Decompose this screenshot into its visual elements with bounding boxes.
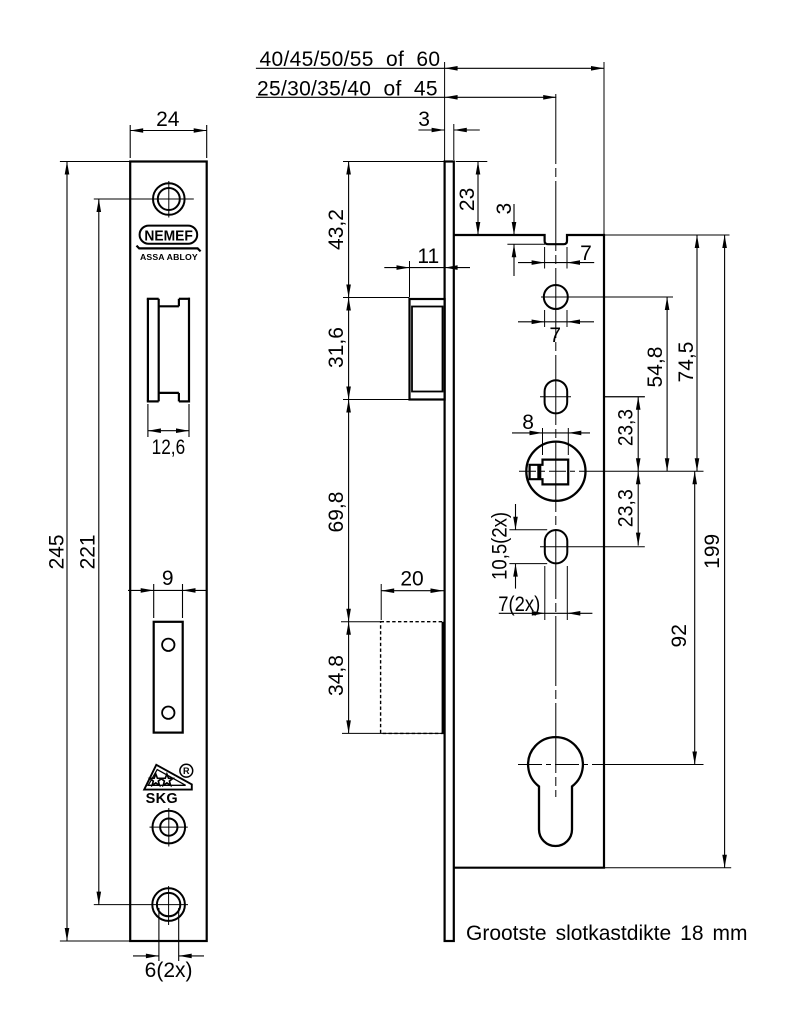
svg-text:23,3: 23,3 [615, 409, 638, 446]
svg-text:31,6: 31,6 [325, 327, 348, 368]
svg-text:9: 9 [162, 567, 174, 590]
svg-text:34,8: 34,8 [325, 655, 348, 696]
svg-text:74,5: 74,5 [675, 342, 698, 383]
svg-text:40/45/50/55 of 60: 40/45/50/55 of 60 [260, 48, 441, 71]
svg-text:3: 3 [493, 203, 516, 215]
svg-text:ASSA ABLOY: ASSA ABLOY [140, 252, 198, 262]
svg-text:7: 7 [549, 324, 561, 347]
svg-text:10,5(2x): 10,5(2x) [489, 512, 512, 580]
svg-text:6(2x): 6(2x) [145, 959, 193, 982]
svg-text:199: 199 [701, 534, 724, 569]
svg-text:245: 245 [45, 534, 68, 569]
svg-text:SKG: SKG [146, 791, 178, 807]
svg-text:R: R [183, 766, 190, 776]
svg-text:24: 24 [156, 108, 180, 131]
svg-text:12,6: 12,6 [152, 436, 186, 459]
svg-text:221: 221 [77, 534, 100, 569]
svg-text:7: 7 [580, 242, 592, 265]
svg-text:23,3: 23,3 [615, 489, 638, 527]
svg-text:Grootste slotkastdikte 18 mm: Grootste slotkastdikte 18 mm [466, 922, 748, 945]
svg-text:43,2: 43,2 [325, 209, 348, 250]
svg-text:NEMEF: NEMEF [144, 228, 193, 244]
svg-text:11: 11 [417, 245, 439, 268]
svg-text:92: 92 [668, 624, 691, 647]
svg-text:54,8: 54,8 [644, 347, 667, 388]
svg-text:23: 23 [456, 188, 479, 211]
svg-text:3: 3 [418, 108, 430, 131]
svg-text:8: 8 [522, 411, 534, 434]
svg-text:69,8: 69,8 [325, 492, 348, 533]
svg-text:20: 20 [400, 568, 423, 591]
